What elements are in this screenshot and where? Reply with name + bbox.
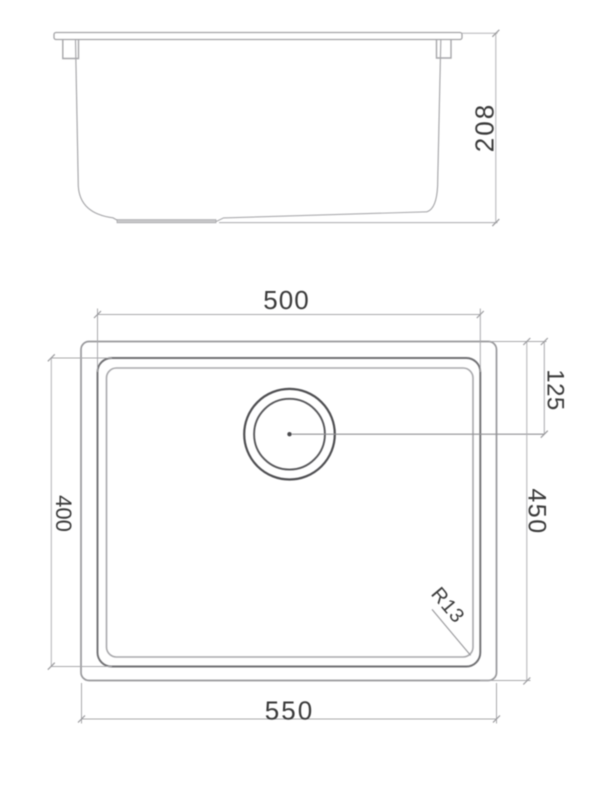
svg-text:550: 550 (265, 696, 314, 726)
svg-text:450: 450 (523, 488, 551, 534)
svg-text:125: 125 (542, 369, 569, 411)
svg-text:400: 400 (51, 495, 76, 532)
svg-text:500: 500 (263, 285, 309, 315)
svg-text:208: 208 (470, 103, 500, 152)
